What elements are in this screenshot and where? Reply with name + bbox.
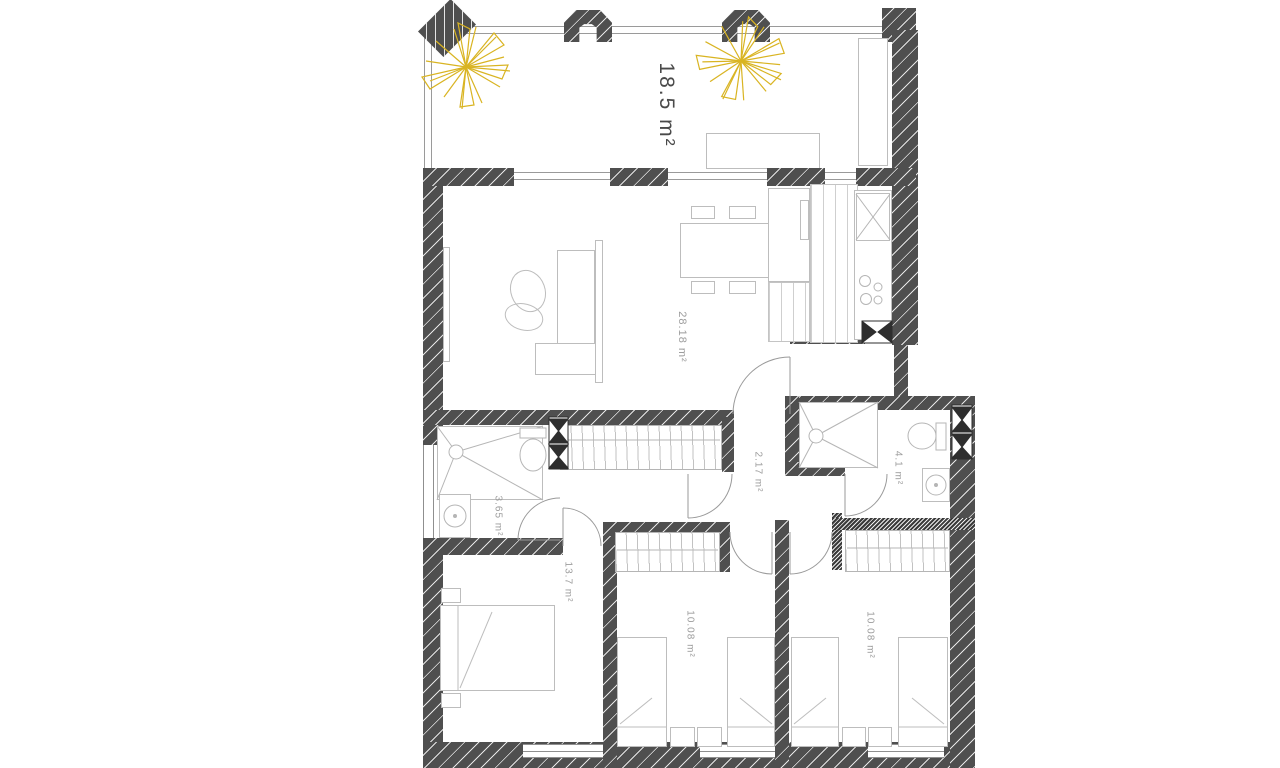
terrace-table — [706, 133, 820, 169]
area-label-bathroom-small: 4.1 m² — [893, 451, 904, 485]
nightstand — [842, 727, 866, 747]
wall-wardrobe-stub — [722, 417, 734, 472]
kitchen-cabinet-run — [810, 184, 858, 343]
terrace-railing-top — [430, 26, 890, 34]
area-label-terrace: 18.5 m² — [654, 62, 678, 147]
terrace-cabinet — [858, 38, 888, 166]
shower-tray-main — [437, 426, 543, 500]
wall-bathroom-main-bottom — [423, 538, 563, 555]
area-label-bedroom-two: 10.08 m² — [685, 610, 696, 657]
dining-chair — [729, 281, 756, 294]
wall-hall-top — [423, 410, 734, 425]
bed-single — [617, 637, 667, 747]
wall-left-upper — [423, 186, 443, 445]
dining-table — [680, 223, 770, 278]
glazing-terrace-1 — [514, 172, 610, 180]
bed-double — [440, 605, 555, 691]
radiator — [443, 247, 450, 362]
nightstand — [441, 588, 461, 603]
wall-living-top-4 — [856, 168, 916, 186]
wall-living-top-2 — [610, 168, 668, 186]
area-label-bathroom-main: 3.65 m² — [493, 496, 504, 537]
nightstand — [868, 727, 892, 747]
area-label-bedroom-three: 10.08 m² — [865, 611, 876, 658]
area-label-living: 28.18 m² — [676, 311, 688, 362]
kitchen-sink — [856, 193, 890, 241]
bath-sink-small — [922, 468, 950, 502]
sofa-chaise — [535, 343, 598, 375]
kitchen-cabinet-low — [768, 282, 810, 342]
pouf-icon — [502, 265, 551, 334]
wall-right-upper — [892, 30, 918, 345]
hall-wardrobe — [560, 425, 722, 470]
wardrobe-bedroom-three — [845, 530, 950, 572]
bed-single — [727, 637, 775, 747]
nightstand — [697, 727, 722, 747]
nightstand — [441, 693, 461, 708]
dining-chair — [691, 281, 715, 294]
area-label-bedroom-master: 13.7 m² — [563, 562, 574, 603]
area-label-hallway: 2.17 m² — [753, 452, 764, 493]
wall-living-top-1 — [423, 168, 514, 186]
toilet-icon — [908, 423, 946, 450]
wall-kitchen-stub — [894, 345, 908, 396]
kitchen-unit-inner — [800, 200, 809, 240]
glazing-terrace-2 — [668, 172, 767, 180]
dining-chair — [691, 206, 715, 219]
wall-bedrooms-divider — [775, 520, 789, 768]
wall-bathroom-small-bottom — [832, 518, 975, 530]
bed-single — [791, 637, 839, 747]
sofa-backrest — [595, 240, 603, 383]
bed-single — [898, 637, 948, 747]
dining-chair — [729, 206, 756, 219]
bath-sink-main — [439, 494, 471, 538]
window-bedroom-master — [523, 744, 603, 758]
glazing-terrace-3 — [825, 172, 856, 180]
wall-right-lower — [950, 396, 975, 768]
floor-plan: 18.5 m² 28.18 m² 3.65 m² 2.17 m² 4.1 m² … — [0, 0, 1280, 768]
terrace-railing-left — [424, 26, 432, 176]
shower-tray-small — [799, 402, 878, 468]
nightstand — [670, 727, 695, 747]
wardrobe-bedroom-two — [615, 532, 720, 572]
sofa-body — [557, 250, 595, 345]
